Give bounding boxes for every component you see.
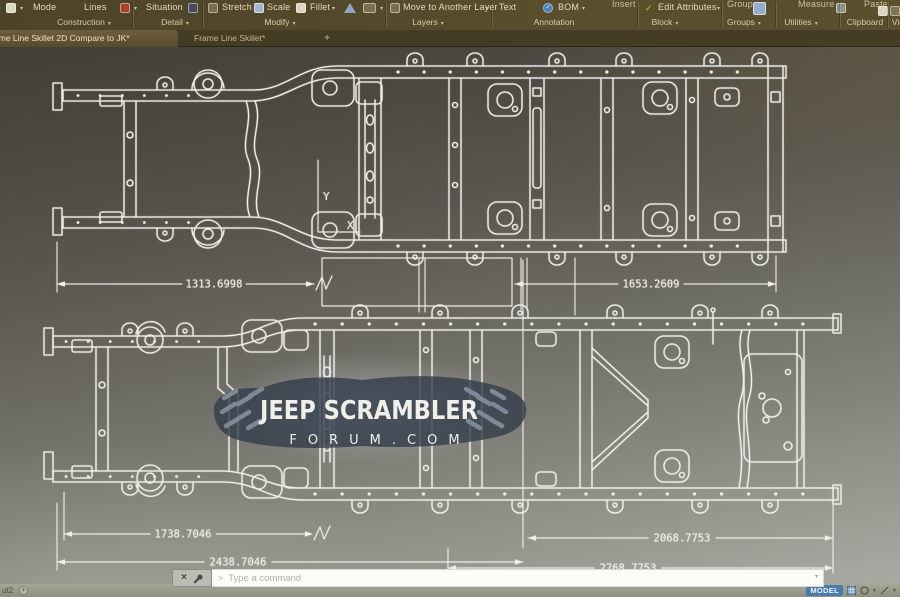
- isodraft-caret-icon[interactable]: ▾: [893, 587, 896, 594]
- panel-construction[interactable]: Construction▾: [57, 17, 111, 27]
- edit-attributes-icon: ✓: [645, 3, 655, 13]
- move-layer-caret-icon[interactable]: ▾: [486, 5, 489, 12]
- command-line: × > Type a command ▾: [172, 569, 824, 587]
- upper-dimensions: 1313.6998 1653.2609: [57, 242, 776, 315]
- panel-block[interactable]: Block▾: [652, 17, 679, 27]
- cad-drawing: Y X 1313.6998 1653.2609: [0, 47, 900, 597]
- panel-clipboard[interactable]: Clipboard: [847, 17, 883, 27]
- dimension-label: 1738.7046: [155, 529, 212, 541]
- tool-lines[interactable]: Lines: [84, 2, 107, 12]
- dimension-upper-left: 1313.6998: [57, 276, 332, 291]
- measure-icon[interactable]: [836, 3, 846, 13]
- new-layout-button[interactable]: +: [19, 586, 28, 595]
- construction-tool-caret-icon[interactable]: ▾: [134, 5, 137, 12]
- group-icon[interactable]: [753, 2, 766, 15]
- dimension-lower-inner-right: 2068.7753: [528, 533, 833, 545]
- svg-text:Y: Y: [323, 190, 330, 203]
- new-drawing-caret-icon[interactable]: ▾: [20, 5, 23, 12]
- fillet-caret-icon[interactable]: ▾: [332, 5, 335, 12]
- tool-move-to-another-layer[interactable]: Move to Another Layer: [403, 2, 498, 12]
- fillet-icon[interactable]: [296, 3, 306, 13]
- rectangle-tool-icon[interactable]: [363, 3, 376, 13]
- tool-fillet[interactable]: Fillet: [310, 2, 330, 12]
- tool-edit-attributes[interactable]: Edit Attributes: [658, 2, 717, 12]
- upper-frame-drawing: [53, 53, 786, 265]
- dimension-lower-inner-left: 1738.7046: [64, 526, 330, 541]
- panel-detail[interactable]: Detail▾: [161, 17, 189, 27]
- dimension-upper-right: 1653.2609: [515, 279, 776, 291]
- panel-utilities[interactable]: Utilities▾: [784, 17, 817, 27]
- annotation-scale-caret-icon[interactable]: ▾: [873, 587, 876, 594]
- command-line-tools: ×: [172, 569, 212, 587]
- tab-frame-line-skillet-2d-compare[interactable]: Frame Line Skillet 2D Compare to JK*: [0, 30, 178, 47]
- dimension-label: 2438.7046: [210, 557, 267, 569]
- construction-tool-icon[interactable]: [120, 3, 130, 13]
- tool-group[interactable]: Group: [727, 0, 753, 9]
- command-placeholder: Type a command: [228, 573, 301, 584]
- panel-view[interactable]: View: [892, 17, 900, 27]
- panel-annotation[interactable]: Annotation: [534, 17, 575, 27]
- tool-bom[interactable]: BOM: [558, 2, 579, 12]
- clipboard-icon[interactable]: [878, 6, 888, 16]
- annotation-scale-icon[interactable]: [860, 586, 869, 595]
- stretch-icon[interactable]: [208, 3, 218, 13]
- rectangle-caret-icon[interactable]: ▾: [380, 5, 383, 12]
- tool-scale[interactable]: Scale: [267, 2, 291, 12]
- command-prompt-icon: >: [218, 573, 223, 583]
- set-square-icon[interactable]: [344, 3, 356, 13]
- isodraft-icon[interactable]: [880, 586, 889, 595]
- scale-icon[interactable]: [254, 3, 264, 13]
- drawing-canvas[interactable]: Y X 1313.6998 1653.2609: [0, 47, 900, 597]
- layout-tab[interactable]: ut2: [2, 586, 13, 595]
- command-input[interactable]: > Type a command ▾: [212, 569, 824, 587]
- panel-layers[interactable]: Layers▾: [412, 17, 444, 27]
- clipboard-alt-icon[interactable]: [890, 6, 900, 16]
- new-tab-button[interactable]: +: [318, 30, 336, 47]
- tab-frame-line-skillet[interactable]: Frame Line Skillet*: [186, 30, 322, 47]
- file-tab-bar: Frame Line Skillet 2D Compare to JK* Fra…: [0, 30, 900, 47]
- dimension-label: 1313.6998: [186, 279, 243, 291]
- dimension-label: 2068.7753: [654, 533, 711, 545]
- ribbon: ▾ Mode Lines ▾ Situation Stretch Scale F…: [0, 0, 900, 30]
- new-drawing-icon[interactable]: [6, 3, 16, 13]
- tool-situation[interactable]: Situation: [146, 2, 183, 12]
- grid-snap-icon[interactable]: [847, 586, 856, 595]
- tool-measure[interactable]: Measure: [798, 0, 834, 9]
- command-wrench-icon[interactable]: [192, 573, 203, 584]
- detail-view-icon[interactable]: [188, 3, 198, 13]
- command-expand-icon[interactable]: ▾: [815, 573, 818, 580]
- bom-caret-icon[interactable]: ▾: [582, 5, 585, 12]
- layers-icon[interactable]: [390, 3, 400, 13]
- bom-icon[interactable]: ✓: [543, 3, 553, 13]
- tool-insert[interactable]: Insert: [612, 0, 636, 9]
- tool-text[interactable]: Text: [499, 2, 516, 12]
- panel-groups[interactable]: Groups▾: [727, 17, 761, 27]
- command-close-icon[interactable]: ×: [181, 573, 187, 583]
- edit-attributes-caret-icon[interactable]: ▾: [717, 5, 720, 12]
- panel-modify[interactable]: Modify▾: [264, 17, 295, 27]
- watermark-subtitle: FORUM.COM: [289, 433, 470, 448]
- watermark: JEEP SCRAMBLER FORUM.COM: [202, 362, 537, 454]
- autocad-window: ▾ Mode Lines ▾ Situation Stretch Scale F…: [0, 0, 900, 597]
- svg-text:X: X: [347, 219, 354, 232]
- tool-stretch[interactable]: Stretch: [222, 2, 252, 12]
- dimension-label: 1653.2609: [623, 279, 680, 291]
- tool-mode[interactable]: Mode: [33, 2, 56, 12]
- watermark-title: JEEP SCRAMBLER: [258, 396, 478, 426]
